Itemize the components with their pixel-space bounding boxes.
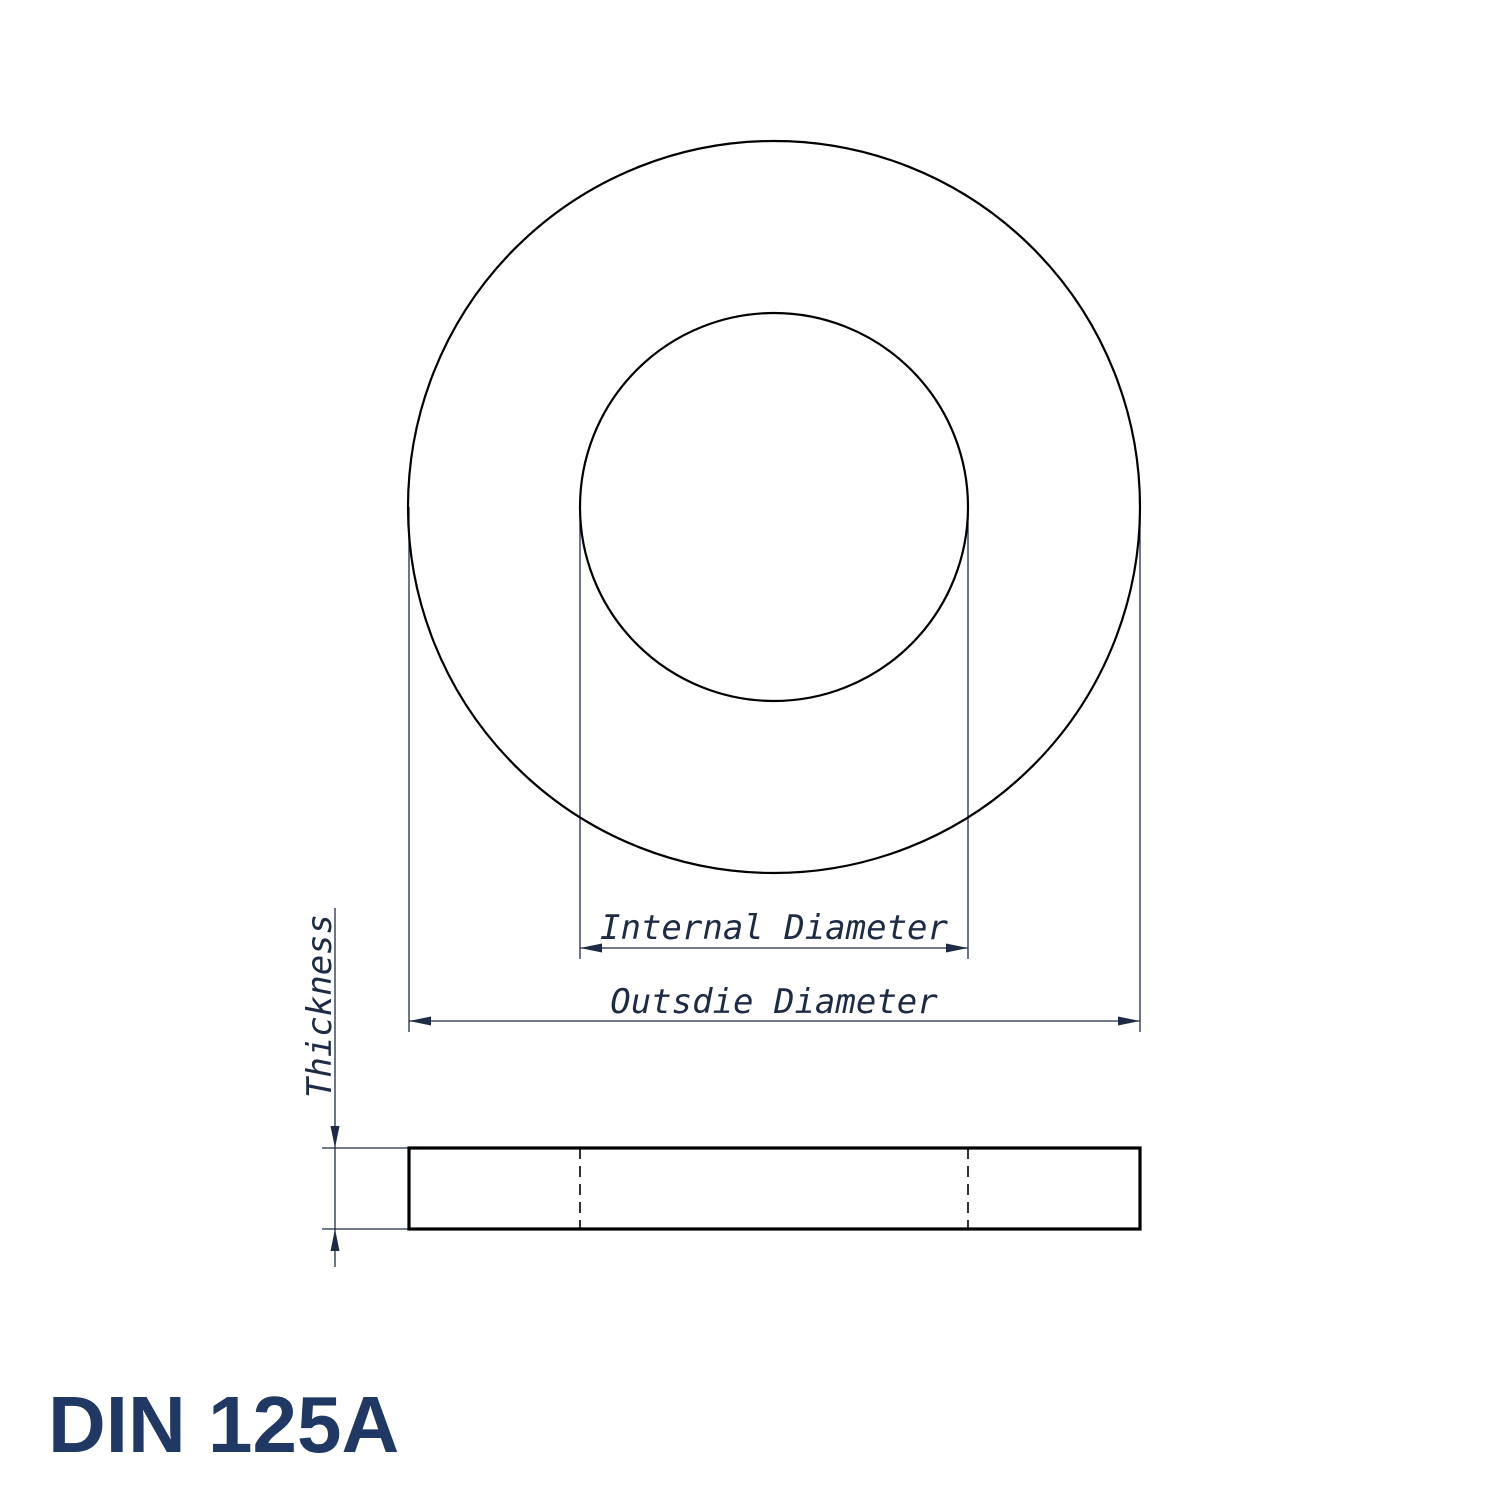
drawing-canvas: Internal Diameter Outsdie Diameter Thick… [0,0,1500,1500]
arrow-left-icon [409,1017,431,1026]
dimension-lines [335,908,1140,1267]
arrow-up-icon [331,1229,340,1251]
dimension-labels: Internal Diameter Outsdie Diameter Thick… [300,908,949,1098]
arrow-right-icon [946,944,968,953]
internal-diameter-label: Internal Diameter [600,908,949,948]
washer-outer-circle [408,141,1140,873]
washer-inner-circle [580,313,968,701]
arrow-down-icon [331,1126,340,1148]
extension-lines [322,507,1140,1229]
drawing-title: DIN 125A [48,1380,399,1469]
arrow-left-icon [580,944,602,953]
washer-technical-drawing: Internal Diameter Outsdie Diameter Thick… [0,0,1500,1500]
side-view [409,1148,1140,1229]
washer-section-outline [409,1148,1140,1229]
outside-diameter-label: Outsdie Diameter [610,982,938,1022]
arrow-right-icon [1118,1017,1140,1026]
thickness-label: Thickness [300,914,340,1098]
top-view [408,141,1140,873]
